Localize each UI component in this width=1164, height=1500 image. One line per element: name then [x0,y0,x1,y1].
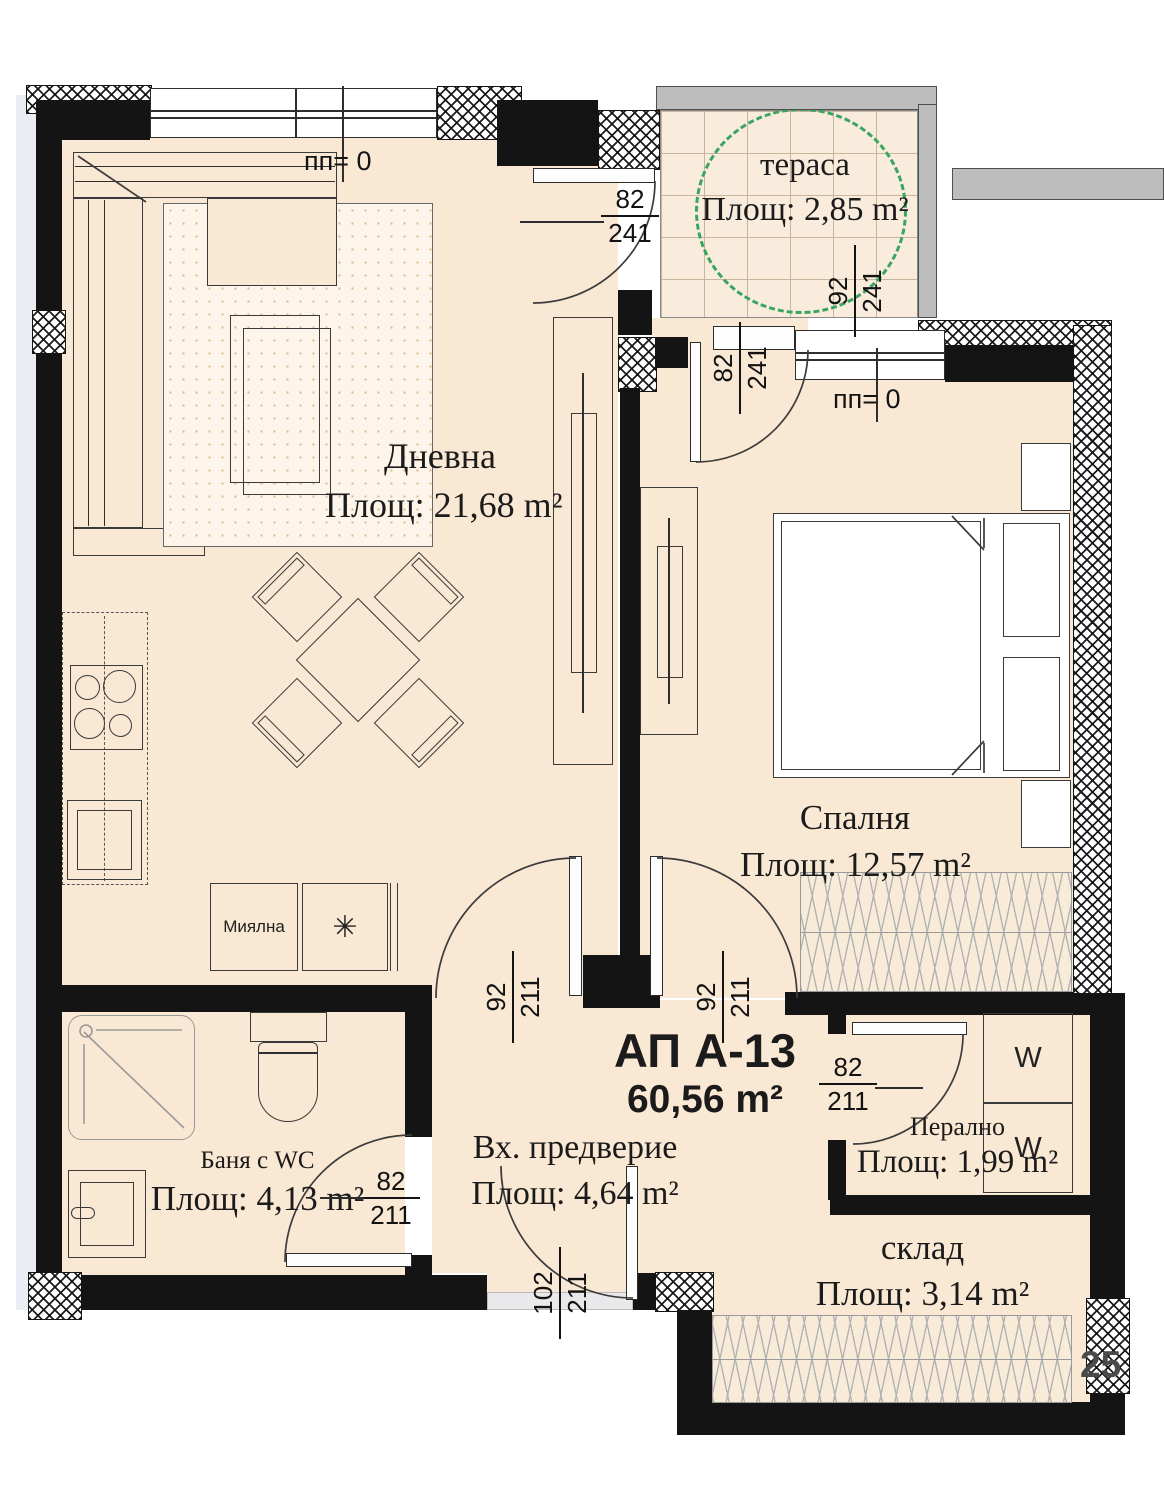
hall-label: Вх. предверие Площ: 4,64 m² [460,1130,690,1211]
living-door-leaf [569,856,582,996]
terrace-parapet-top [656,86,937,110]
living-room-window [150,88,437,138]
wall-door-stub [583,955,660,1008]
dim-living-terrace-door: 82 241 [601,186,659,246]
burner-icon [103,670,136,703]
wall-bedroom-top [945,345,1075,382]
dim-bedroom-balcony-door: 82 241 [711,322,769,414]
apartment-area: 60,56 m² [590,1080,820,1121]
sink-symbol: ✳ [332,910,357,945]
tv-unit-living [553,317,613,765]
nightstand-bottom [1021,780,1071,848]
dim-bathroom-door: 82 211 [362,1168,420,1228]
dim-entry-door: 102 211 [531,1247,589,1339]
bedroom-balcony-door-leaf [690,342,701,462]
living-window-sill-line-2 [150,117,437,119]
wall-laundry-left-upper-stub [828,1015,846,1034]
level-mark-bedroom: пп= 0 [833,384,901,415]
dim-terrace-opening: 92 241 [826,245,884,337]
tv-unit-bedroom [640,487,698,735]
hall-area: Площ: 4,64 m² [460,1176,690,1212]
dim-bedroom-hall-door: 92 211 [694,951,752,1043]
laundry-name: Перално [850,1113,1065,1140]
page-edge-shadow [16,95,36,1310]
oven [67,800,142,880]
counter-end-double-line [390,883,398,971]
wall-hatch-bottom-left-corner [28,1272,82,1320]
living-window-mullion [295,88,297,138]
terrace-label: тераса Площ: 2,85 m² [700,148,910,227]
bedroom-door-leaf [650,856,663,996]
bedroom-wardrobe [800,872,1072,992]
terrace-area: Площ: 2,85 m² [700,192,910,228]
bathroom-name: Баня с WC [140,1148,375,1174]
wall-laundry-top [830,993,1125,1015]
wall-right-hatch [1073,325,1112,1002]
level-mark-living: пп= 0 [304,146,372,177]
bed-pillow-bottom [1003,657,1060,771]
tv-unit-inner [657,546,683,678]
coffee-table-inner [243,328,331,495]
toilet-bowl [258,1042,318,1122]
bed-mattress [781,521,981,770]
wall-laundry-storage [830,1195,1090,1215]
tv-unit-line [668,518,670,704]
sofa-left-arm [73,198,143,528]
washer-top: W [983,1013,1073,1103]
wall-left-hatch-segment [32,310,66,354]
wall-bottom-left [36,1275,487,1310]
tv-unit-inner [571,413,597,673]
boiler-unit [68,1170,146,1258]
wall-mid-top-block [618,290,652,335]
bedroom-window [795,330,945,380]
bedroom-window-sill-2 [795,359,945,361]
living-room-label: Дневна Площ: 21,68 m² [325,438,555,525]
cooktop [70,665,143,750]
sofa-arm-line-1 [88,200,89,526]
laundry-area: Площ: 1,99 m² [850,1145,1065,1180]
storage-name: склад [815,1230,1030,1267]
wall-storage-bottom [677,1402,1125,1435]
burner-icon [75,675,100,700]
dim-living-hall-door: 92 211 [484,951,542,1043]
dim-ext-line-balcony [520,221,604,223]
nightstand-top [1021,443,1071,511]
wall-hatch-entry-right [655,1272,714,1312]
dishwasher-label: Миялна [223,917,285,937]
sofa-back-line-2 [75,181,335,182]
washer-top-label: W [1014,1042,1041,1075]
toilet-cistern [250,1012,327,1042]
sink-cabinet: ✳ [302,883,388,971]
sofa-chaise-cushion [207,198,337,286]
terrace-name: тераса [700,148,910,183]
burner-icon [109,714,132,737]
sofa-arm-line-2 [104,200,105,526]
storage-area: Площ: 3,14 m² [815,1276,1030,1313]
terrace-parapet-right [918,104,937,318]
dim-ext-line-bathroom [320,1197,364,1199]
living-window-sill-line-1 [150,110,437,112]
wall-top-mid [497,100,598,166]
wall-bathroom-top [55,985,432,1012]
dim-ext-line-laundry [875,1087,923,1089]
toilet-seat-line [259,1052,317,1054]
dishwasher-cabinet: Миялна [210,883,298,971]
oven-inner [77,810,132,870]
bathroom-label: Баня с WC Площ: 4,13 m² [140,1148,375,1218]
bed-pillow-top [1003,523,1060,637]
burner-icon [74,708,105,739]
wall-living-bedroom [620,388,640,960]
bedroom-window-sill-1 [795,352,945,354]
wall-left [36,100,62,1277]
bedroom-label: Спалня Площ: 12,57 m² [740,800,970,884]
neighbor-parapet-fragment [952,168,1164,200]
bedroom-area: Площ: 12,57 m² [740,847,970,884]
wall-hatch-balcony-jamb [598,110,660,170]
living-area: Площ: 21,68 m² [325,487,555,525]
sofa-back-line-1 [75,166,335,167]
storage-label: склад Площ: 3,14 m² [815,1230,1030,1313]
balcony-door-leaf [533,168,655,183]
storage-wardrobe [712,1315,1072,1403]
wall-bathroom-right-upper [405,1012,432,1137]
laundry-door-leaf [852,1022,967,1035]
sofa-back [73,152,337,198]
wall-laundry-left-lower-stub [828,1140,846,1200]
tv-unit-line [582,373,584,713]
bathroom-door-leaf [286,1253,412,1267]
plan-corner-number: 25 [1080,1344,1121,1386]
bedroom-name: Спалня [740,800,970,837]
bathroom-area: Площ: 4,13 m² [140,1181,375,1218]
wall-mid-small-block [655,337,688,368]
floor-plan: Миялна ✳ W W [0,0,1164,1500]
dim-laundry-door: 82 211 [819,1054,877,1114]
laundry-label: Перално Площ: 1,99 m² [850,1113,1065,1180]
wall-mid-hatch-block [618,337,657,392]
shower-tray [68,1015,195,1140]
living-name: Дневна [325,438,555,476]
hall-name: Вх. предверие [460,1130,690,1166]
boiler-handle-icon [71,1207,95,1219]
